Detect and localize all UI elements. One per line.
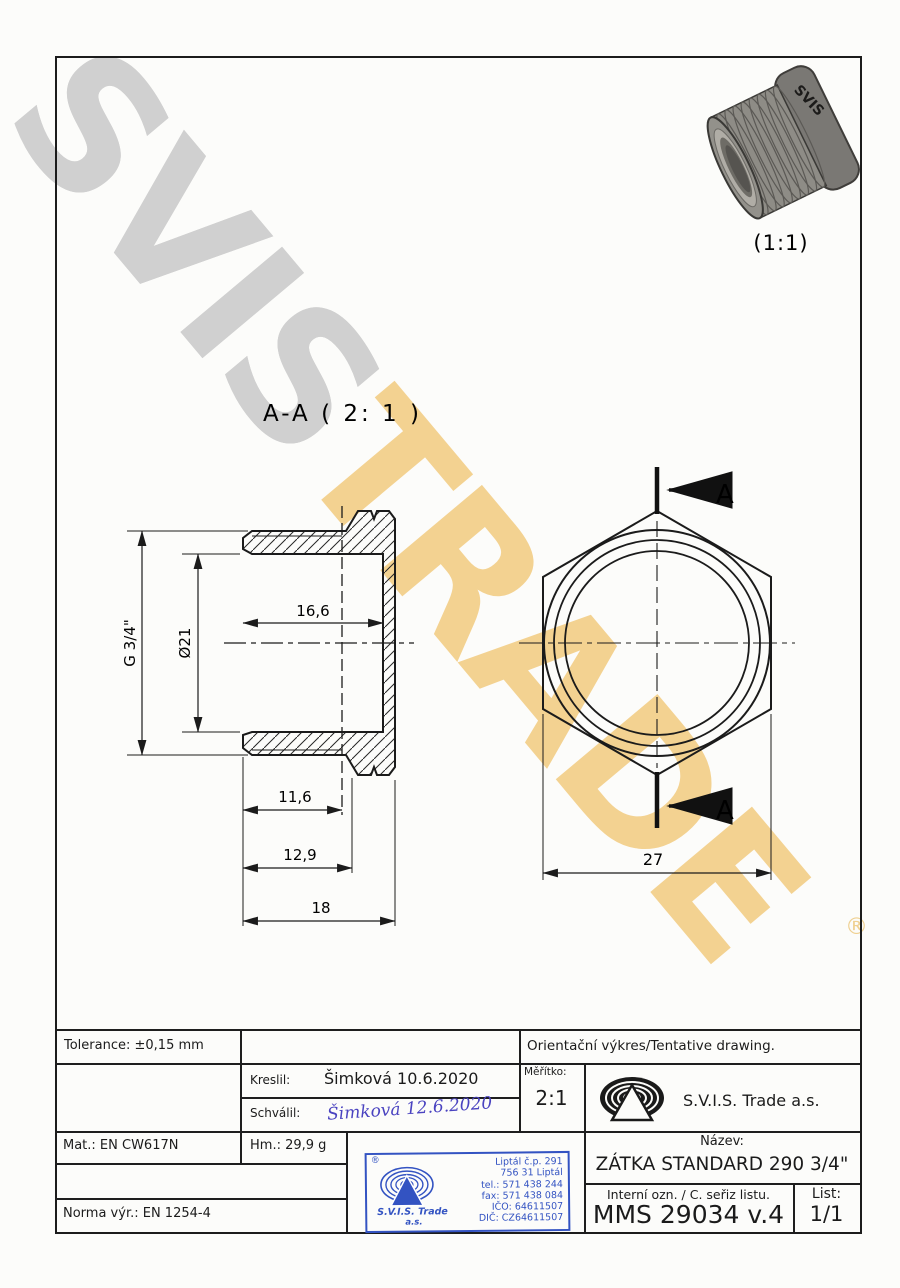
- list-value: 1/1: [793, 1202, 860, 1226]
- nazev-label: Název:: [584, 1134, 860, 1149]
- stamp-company-suffix: a.s.: [405, 1217, 422, 1227]
- tb-line: [55, 1131, 860, 1133]
- stamp-address-line: DIČ: CZ64611507: [479, 1212, 564, 1224]
- drawing-sheet: SVISTRADE ® A-A ( 2: 1 ): [0, 0, 900, 1288]
- list-label: List:: [793, 1186, 860, 1202]
- kreslil-label: Kreslil:: [250, 1073, 290, 1087]
- company-stamp: ® S.V.I.S. Trade a.s. Liptál č.p. 291 75…: [365, 1151, 571, 1233]
- tb-line: [55, 1163, 346, 1165]
- stamp-address-line: Liptál č.p. 291: [478, 1156, 563, 1168]
- norma-field: Norma výr.: EN 1254-4: [63, 1206, 211, 1221]
- material-field: Mat.: EN CW617N: [63, 1138, 178, 1153]
- tb-line: [346, 1131, 348, 1232]
- stamp-registered-icon: ®: [371, 1156, 380, 1166]
- stamp-address-line: tel.: 571 438 244: [478, 1179, 563, 1191]
- tb-line: [584, 1183, 860, 1185]
- nazev-value: ZÁTKA STANDARD 290 3/4": [584, 1154, 860, 1175]
- meritko-label: Měřítko:: [524, 1066, 567, 1078]
- tolerance-field: Tolerance: ±0,15 mm: [64, 1038, 204, 1053]
- tentative-drawing-note: Orientační výkres/Tentative drawing.: [527, 1038, 775, 1054]
- drawing-frame: [55, 56, 862, 1234]
- interni-value: MMS 29034 v.4: [584, 1200, 793, 1229]
- company-name: S.V.I.S. Trade a.s.: [683, 1091, 820, 1110]
- tb-line: [519, 1029, 521, 1133]
- schvalil-label: Schválil:: [250, 1106, 300, 1120]
- stamp-address: Liptál č.p. 291 756 31 Liptál tel.: 571 …: [478, 1156, 563, 1225]
- tb-line: [55, 1029, 860, 1031]
- kreslil-value: Šimková 10.6.2020: [324, 1069, 478, 1088]
- stamp-company-name: S.V.I.S. Trade: [377, 1206, 448, 1218]
- weight-field: Hm.: 29,9 g: [250, 1138, 326, 1153]
- tb-line: [55, 1063, 860, 1065]
- meritko-value: 2:1: [519, 1086, 584, 1110]
- tb-line: [55, 1198, 346, 1200]
- stamp-logo-icon: [379, 1165, 435, 1208]
- company-logo-icon: [599, 1076, 665, 1122]
- tb-line: [240, 1029, 242, 1165]
- stamp-address-line: 756 31 Liptál: [478, 1167, 563, 1179]
